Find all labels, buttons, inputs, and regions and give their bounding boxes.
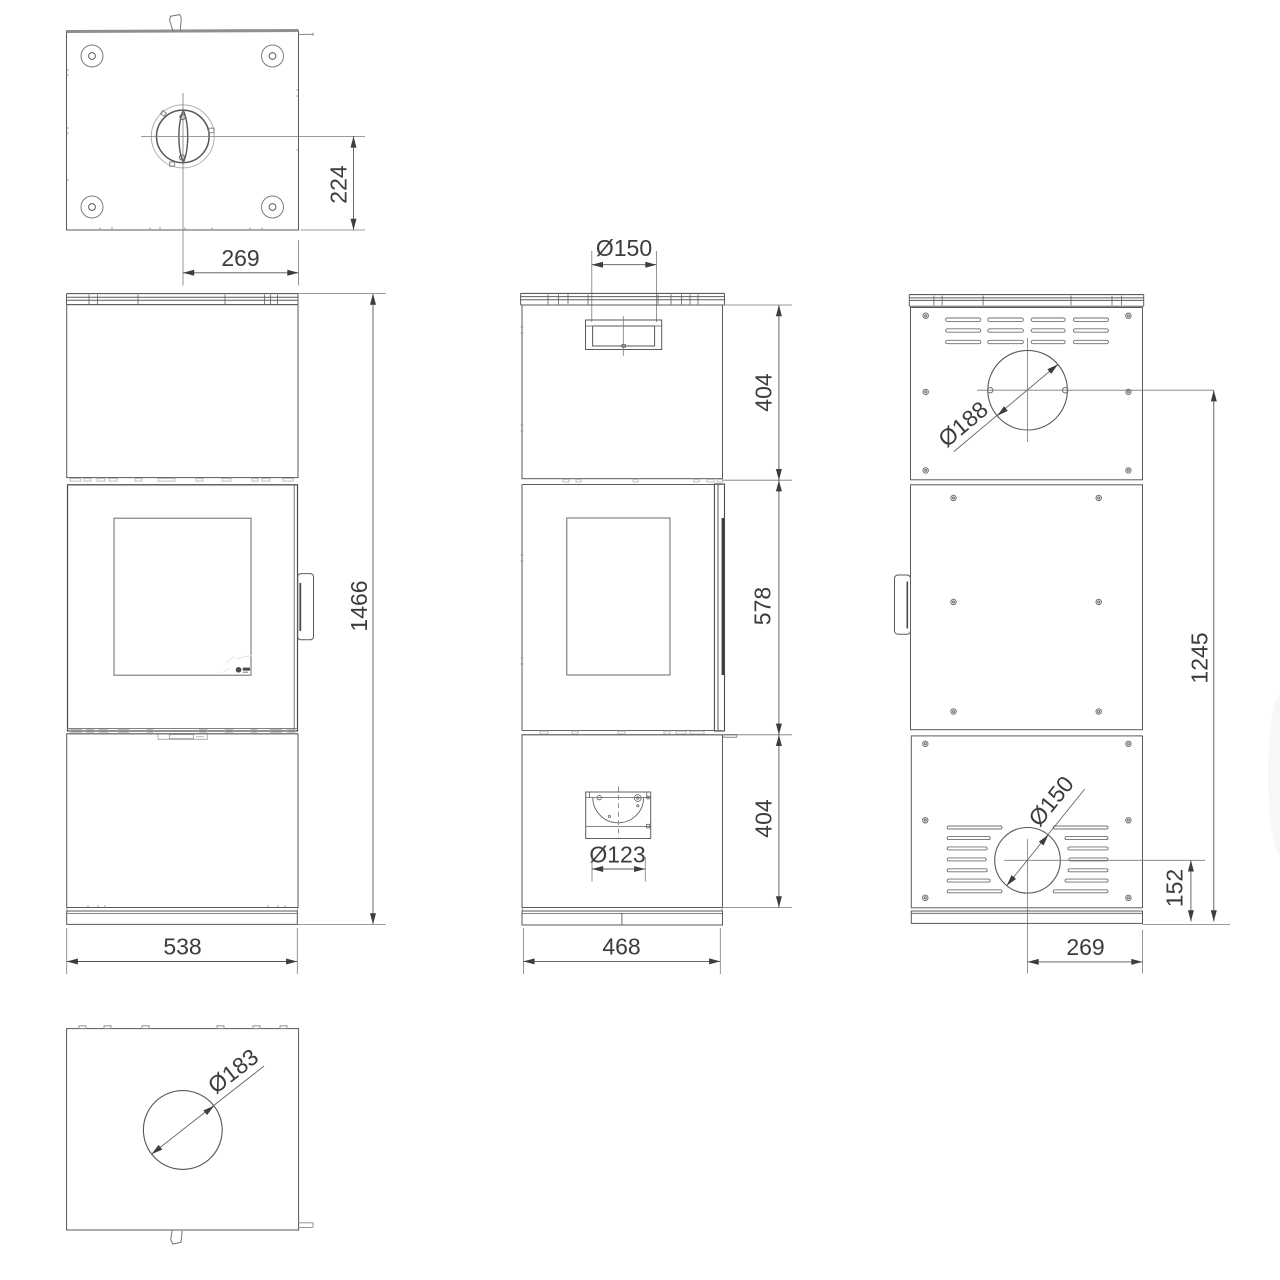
- svg-text:Ø150: Ø150: [596, 235, 652, 261]
- svg-text:538: 538: [163, 934, 201, 960]
- svg-text:269: 269: [221, 245, 259, 271]
- svg-text:152: 152: [1162, 869, 1188, 907]
- svg-text:468: 468: [602, 934, 640, 960]
- svg-text:Ø150: Ø150: [1023, 771, 1079, 831]
- svg-text:578: 578: [750, 587, 776, 625]
- svg-text:269: 269: [1066, 934, 1104, 960]
- svg-text:1466: 1466: [346, 580, 372, 631]
- svg-text:404: 404: [751, 799, 777, 838]
- svg-text:1245: 1245: [1187, 632, 1213, 683]
- svg-text:404: 404: [751, 373, 777, 412]
- svg-text:Ø123: Ø123: [589, 842, 645, 868]
- svg-text:224: 224: [326, 165, 352, 204]
